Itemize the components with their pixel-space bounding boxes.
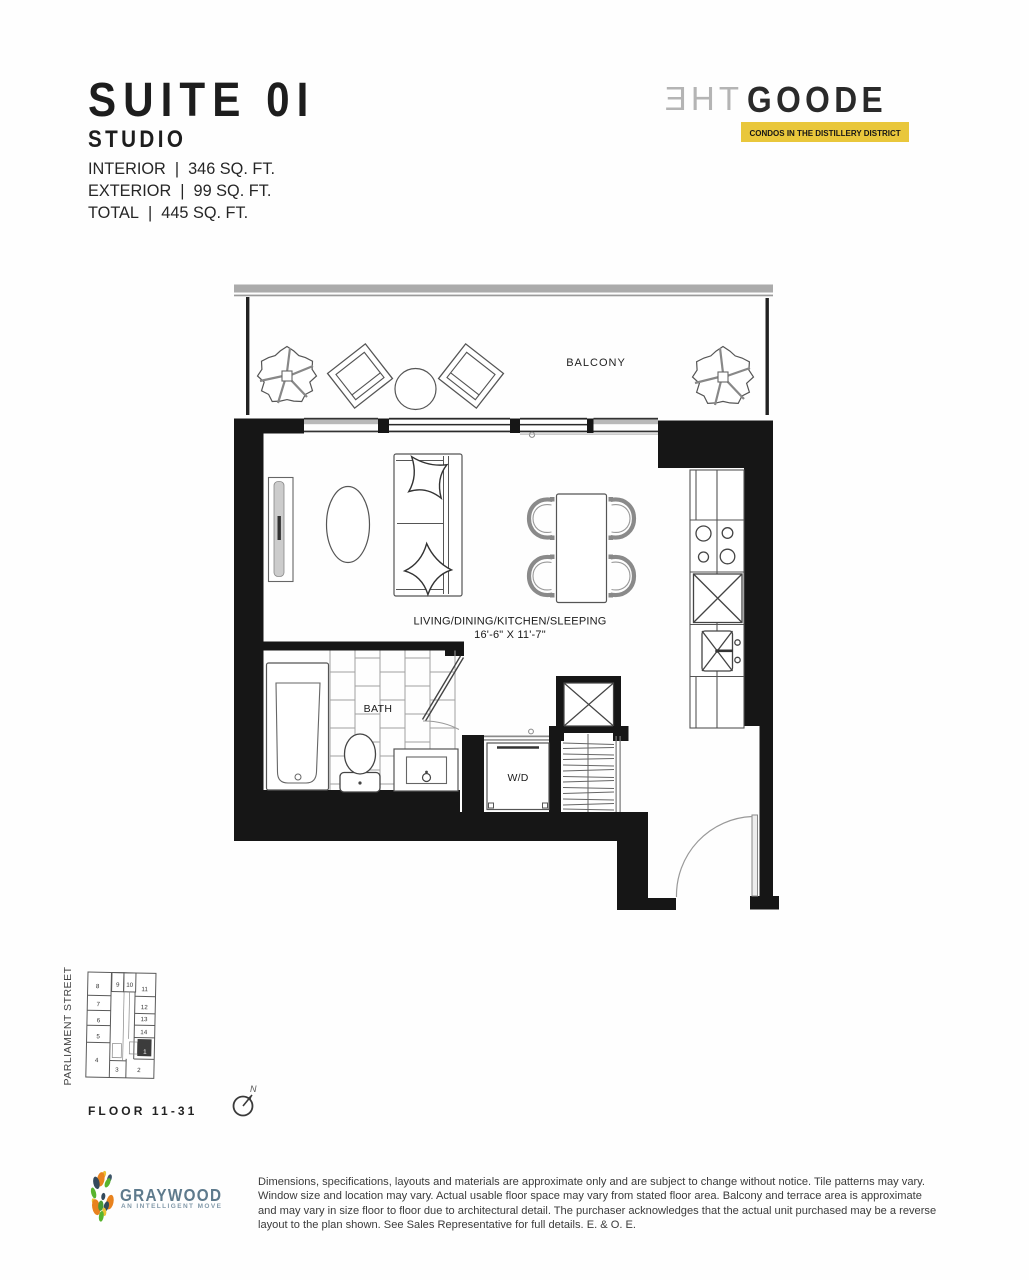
svg-text:16'-6" X 11'-7": 16'-6" X 11'-7" bbox=[474, 629, 546, 641]
svg-text:N: N bbox=[250, 1084, 257, 1094]
svg-text:BATH: BATH bbox=[364, 703, 393, 715]
svg-text:12: 12 bbox=[141, 1004, 149, 1011]
svg-text:14: 14 bbox=[140, 1029, 148, 1036]
svg-text:10: 10 bbox=[126, 982, 134, 989]
svg-text:13: 13 bbox=[140, 1016, 148, 1023]
svg-text:LIVING/DINING/KITCHEN/SLEEPING: LIVING/DINING/KITCHEN/SLEEPING bbox=[413, 616, 606, 628]
svg-text:W/D: W/D bbox=[507, 772, 528, 784]
svg-text:11: 11 bbox=[141, 986, 148, 993]
svg-text:BALCONY: BALCONY bbox=[566, 357, 626, 369]
